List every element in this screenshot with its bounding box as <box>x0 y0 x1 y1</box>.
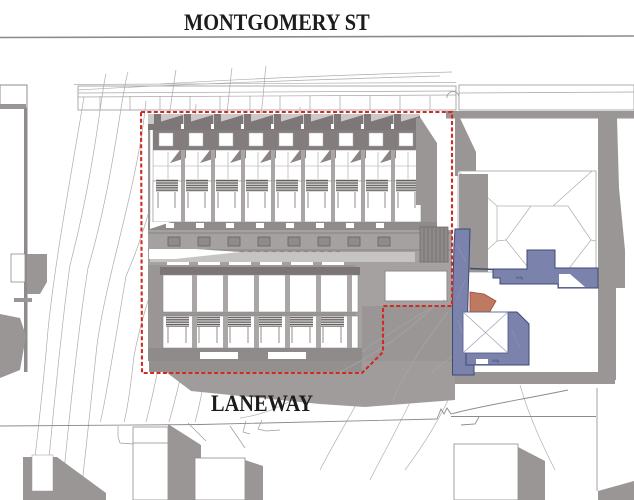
svg-text:LANEWAY: LANEWAY <box>211 391 313 416</box>
svg-text:bldg: bldg <box>492 358 499 363</box>
svg-text:bldg: bldg <box>516 275 523 280</box>
